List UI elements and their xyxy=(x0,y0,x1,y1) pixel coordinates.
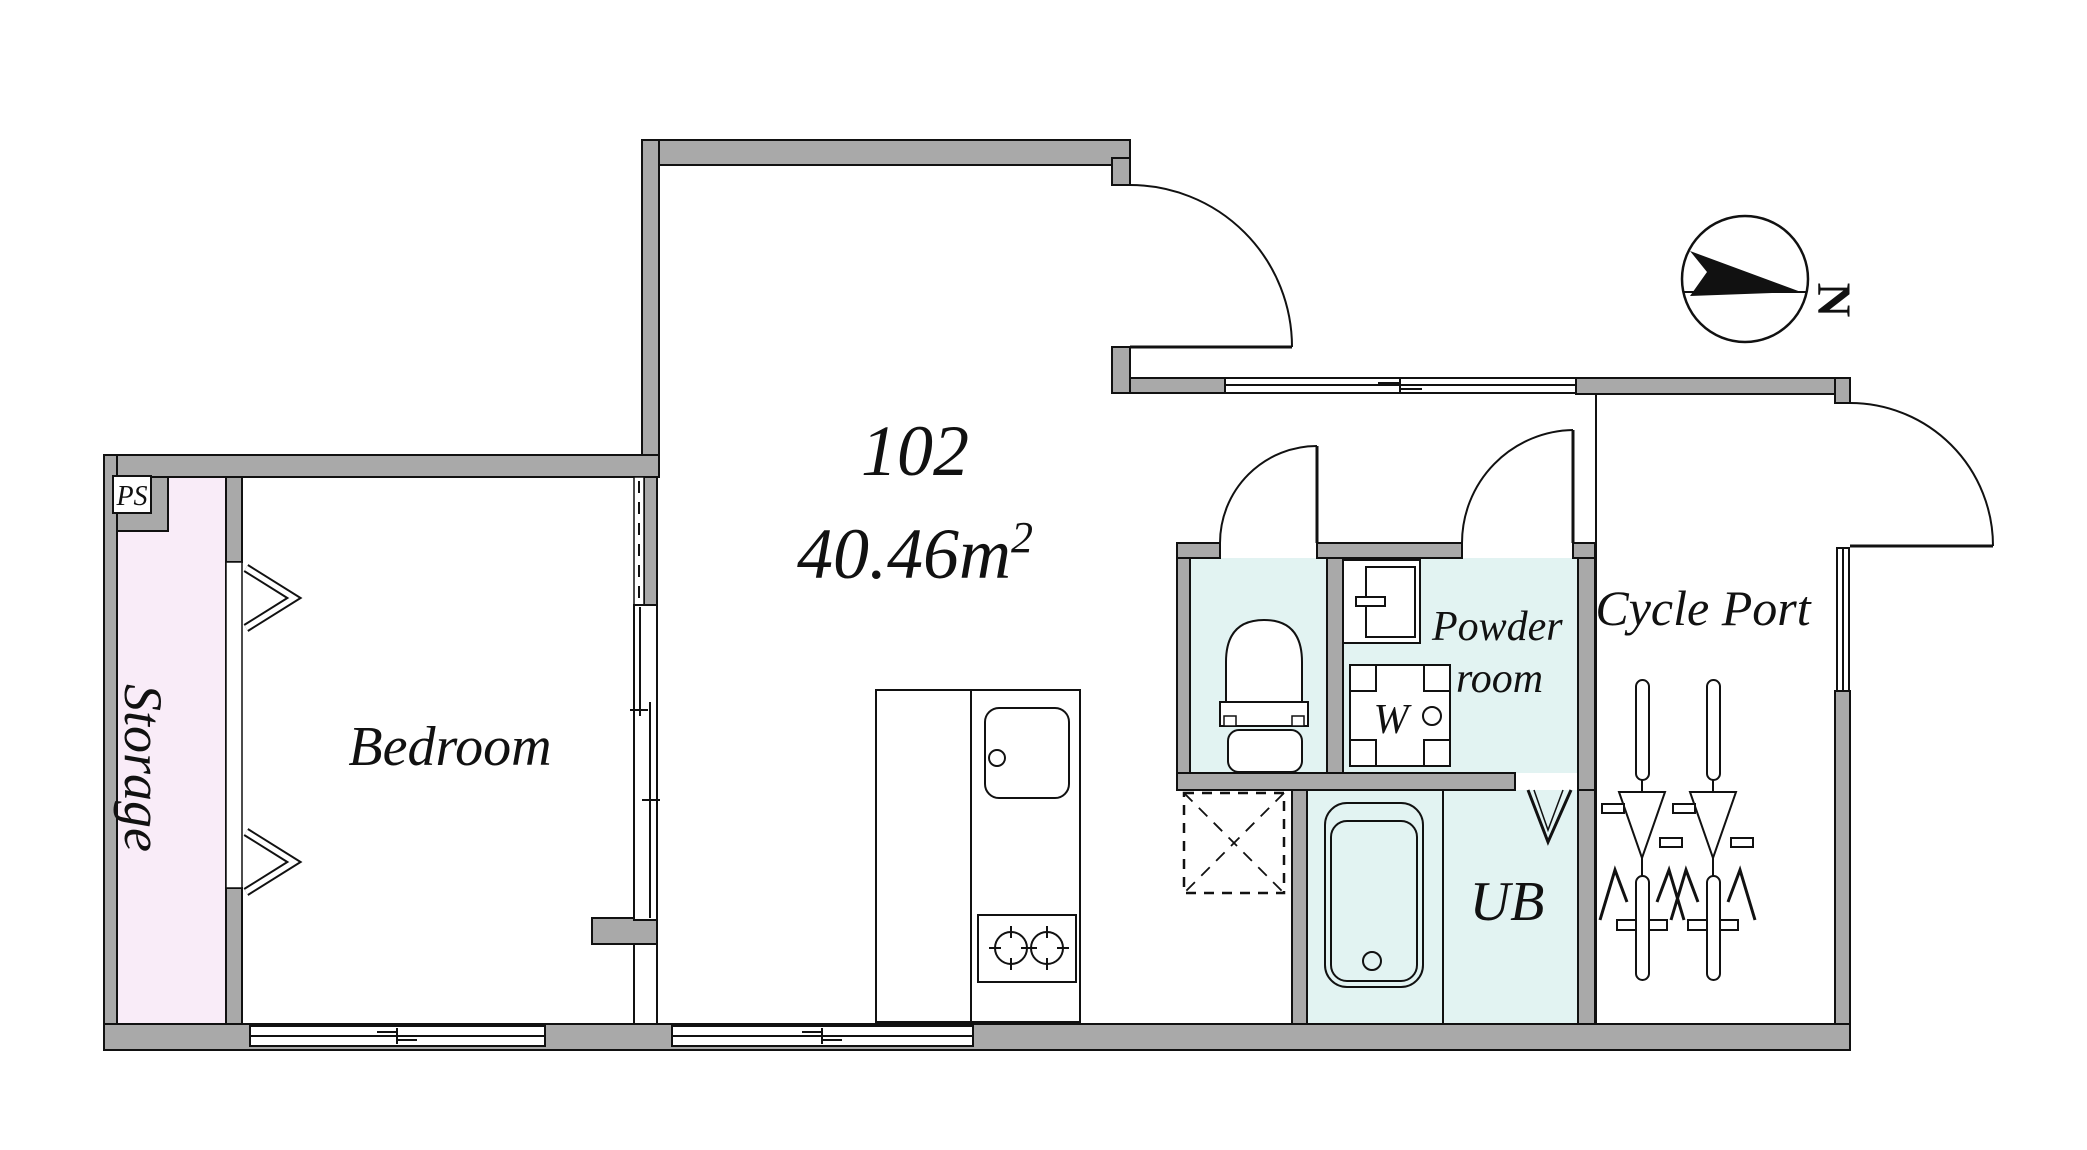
pipe-space-label: PS xyxy=(115,481,147,512)
bicycle-icon xyxy=(1600,680,1684,980)
floor-plan-page: PS xyxy=(0,0,2087,1150)
storage-label: Storage xyxy=(113,684,173,852)
wall-segment xyxy=(1327,558,1343,773)
wall-segment xyxy=(1177,558,1190,790)
wall-segment xyxy=(226,477,242,562)
kitchen-counter xyxy=(876,690,1080,1022)
pipe-space: PS xyxy=(113,476,151,513)
wall-segment xyxy=(1292,790,1307,1024)
vanity-icon xyxy=(1343,560,1420,643)
bedroom-window xyxy=(250,1026,545,1046)
powder-room-label-line2: room xyxy=(1456,656,1543,702)
unit-bath-label: UB xyxy=(1470,871,1545,933)
closet-door-arrow-icon xyxy=(246,832,294,892)
powder-room-label-line1: Powder xyxy=(1431,604,1563,650)
wall-segment xyxy=(226,888,242,1024)
stove-icon xyxy=(978,915,1076,982)
wall-segment xyxy=(1576,378,1837,394)
wall-segment xyxy=(644,477,657,605)
wall-segment xyxy=(592,918,657,944)
cycle-port-label: Cycle Port xyxy=(1595,580,1811,636)
wall-segment xyxy=(1317,543,1462,558)
wall-segment xyxy=(1578,558,1595,790)
unit-number-label: 102 xyxy=(861,411,969,491)
area-value: 40.46m xyxy=(797,514,1011,594)
toilet-icon xyxy=(1220,620,1308,772)
north-compass-icon: N xyxy=(1682,216,1860,342)
sink-icon xyxy=(985,708,1069,798)
washer-label: W xyxy=(1374,697,1413,743)
bedroom-label: Bedroom xyxy=(348,716,551,778)
wall-segment xyxy=(1130,378,1225,393)
closet-door xyxy=(226,562,294,892)
wall-segment xyxy=(1177,773,1515,790)
wall-segment xyxy=(1578,790,1595,1024)
entrance-door xyxy=(1130,185,1292,347)
area-superscript: 2 xyxy=(1011,513,1033,562)
wall-segment xyxy=(1835,378,1850,403)
floor-plan: PS xyxy=(0,0,2087,1150)
wall-segment xyxy=(1835,691,1850,1024)
powder-room-door xyxy=(1462,430,1573,543)
washing-machine-icon: W xyxy=(1350,665,1450,766)
wall-segment xyxy=(642,140,659,458)
toilet-door xyxy=(1220,446,1317,543)
wall-segment xyxy=(104,455,659,477)
wall-segment xyxy=(1177,543,1220,558)
wall-segment xyxy=(642,140,1130,165)
entry-corridor-window xyxy=(1225,378,1576,393)
bicycle-icon xyxy=(1671,680,1755,980)
floor-hatch xyxy=(1184,793,1284,893)
wall-segment xyxy=(1112,158,1130,185)
unit-area-label: 40.46m2 xyxy=(797,513,1033,594)
wall-segment xyxy=(1573,543,1595,558)
compass-north-label: N xyxy=(1807,283,1860,318)
cycle-port-door xyxy=(1850,403,1993,546)
living-room-window xyxy=(672,1026,973,1046)
wall-segment xyxy=(1112,347,1130,393)
closet-door-arrow-icon xyxy=(246,568,294,628)
cycle-port-window xyxy=(1837,548,1849,691)
